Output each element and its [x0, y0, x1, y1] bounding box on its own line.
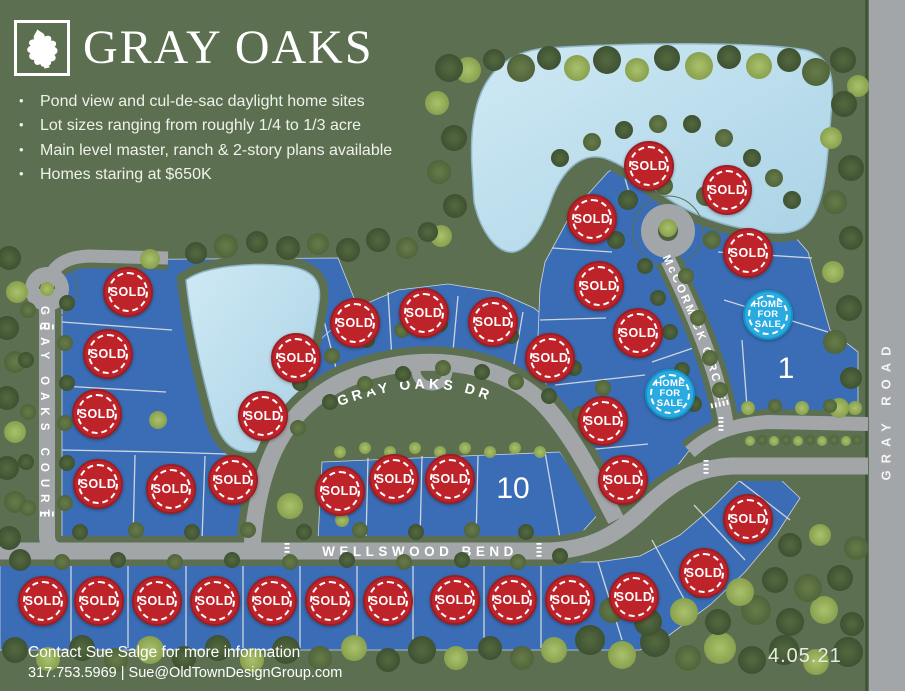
lot-badge-sold[interactable]: SOLD [271, 333, 321, 383]
lot-badge-sold[interactable]: SOLD [330, 298, 380, 348]
lot-badge-sold[interactable]: SOLD [567, 194, 617, 244]
contact-line: Contact Sue Salge for more information [28, 644, 342, 662]
bullet-item: Homes staring at $650K [16, 163, 392, 187]
lot-badge-for-sale[interactable]: HOMEFORSALE [743, 290, 793, 340]
logo-box [14, 20, 70, 76]
lot-badge-sold[interactable]: SOLD [238, 391, 288, 441]
bullet-item: Main level master, ranch & 2-story plans… [16, 139, 392, 163]
lot-badge-sold[interactable]: SOLD [702, 165, 752, 215]
bullet-item: Pond view and cul-de-sac daylight home s… [16, 90, 392, 114]
lot-badge-sold[interactable]: SOLD [399, 288, 449, 338]
lot-badge-sold[interactable]: SOLD [208, 455, 258, 505]
lot-badge-sold[interactable]: SOLD [369, 454, 419, 504]
lot-badge-sold[interactable]: SOLD [363, 576, 413, 626]
feature-bullets: Pond view and cul-de-sac daylight home s… [16, 90, 392, 187]
lot-badge-sold[interactable]: SOLD [72, 389, 122, 439]
oak-leaf-icon [20, 26, 64, 70]
lot-badge-sold[interactable]: SOLD [679, 548, 729, 598]
lot-badge-sold[interactable]: SOLD [624, 141, 674, 191]
lot-badge-sold[interactable]: SOLD [146, 464, 196, 514]
lot-badge-sold[interactable]: SOLD [103, 267, 153, 317]
lot-badge-sold[interactable]: SOLD [247, 576, 297, 626]
lot-badge-sold[interactable]: SOLD [578, 396, 628, 446]
lot-badge-sold[interactable]: SOLD [723, 494, 773, 544]
lot-badge-sold[interactable]: SOLD [723, 228, 773, 278]
lot-badge-sold[interactable]: SOLD [315, 466, 365, 516]
lot-badge-sold[interactable]: SOLD [609, 572, 659, 622]
lot-badge-sold[interactable]: SOLD [574, 261, 624, 311]
lot-number[interactable]: 1 [778, 352, 795, 386]
lot-badge-for-sale[interactable]: HOMEFORSALE [645, 369, 695, 419]
lot-badge-sold[interactable]: SOLD [132, 576, 182, 626]
lot-badge-sold[interactable]: SOLD [430, 575, 480, 625]
lot-number[interactable]: 10 [496, 472, 529, 506]
lot-badge-sold[interactable]: SOLD [487, 575, 537, 625]
lot-badge-sold[interactable]: SOLD [190, 576, 240, 626]
contact-phone-email: 317.753.5969 | Sue@OldTownDesignGroup.co… [28, 665, 342, 681]
brand-header: GRAY OAKS [14, 20, 374, 76]
plan-date: 4.05.21 [768, 645, 842, 668]
lot-badge-sold[interactable]: SOLD [18, 576, 68, 626]
lot-badge-sold[interactable]: SOLD [545, 575, 595, 625]
lot-badge-sold[interactable]: SOLD [425, 454, 475, 504]
lot-badge-sold[interactable]: SOLD [83, 329, 133, 379]
lot-badge-sold[interactable]: SOLD [73, 459, 123, 509]
lot-badge-sold[interactable]: SOLD [525, 333, 575, 383]
lot-badge-sold[interactable]: SOLD [613, 308, 663, 358]
lot-badge-sold[interactable]: SOLD [305, 576, 355, 626]
lot-badge-sold[interactable]: SOLD [74, 576, 124, 626]
site-plan-flyer: GRAY OAKS DR McCORMICK CIRCLE WELLSWOOD … [0, 0, 905, 691]
contact-block: Contact Sue Salge for more information 3… [28, 644, 342, 681]
lot-badge-sold[interactable]: SOLD [468, 297, 518, 347]
bullet-item: Lot sizes ranging from roughly 1/4 to 1/… [16, 114, 392, 138]
page-title: GRAY OAKS [83, 24, 374, 72]
lot-badge-sold[interactable]: SOLD [598, 455, 648, 505]
